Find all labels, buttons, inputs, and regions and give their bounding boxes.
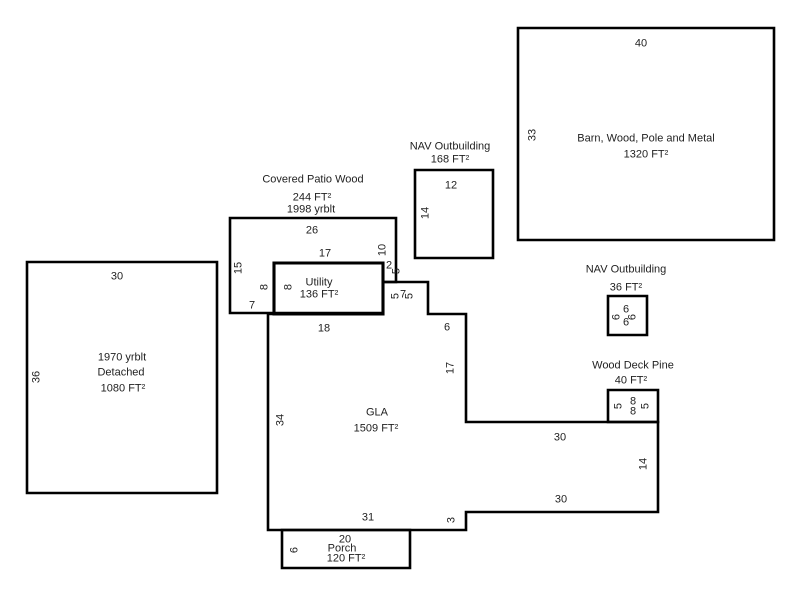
covered-patio-title: Covered Patio Wood bbox=[262, 175, 363, 186]
porch-dim-left: 6 bbox=[290, 547, 301, 553]
detached-area-label: 1080 FT² bbox=[101, 384, 146, 395]
gla-dim-step: 3 bbox=[447, 517, 458, 523]
utility-dim-left-inner: 8 bbox=[284, 284, 295, 290]
nav-outbuilding-large-area-label: 168 FT² bbox=[431, 155, 470, 166]
nav-outbuilding-small-dim-left: 6 bbox=[612, 314, 623, 320]
nav-outbuilding-small-area-label: 36 FT² bbox=[610, 283, 642, 294]
covered-patio-year-built: 1998 yrblt bbox=[287, 205, 335, 216]
gla-dim-mid-right: 30 bbox=[554, 433, 566, 444]
appraisal-sketch-canvas: 40 33 Barn, Wood, Pole and Metal 1320 FT… bbox=[0, 0, 800, 600]
barn-dim-left: 33 bbox=[528, 129, 539, 141]
covered-patio-area-label: 244 FT² bbox=[293, 193, 332, 204]
barn-title: Barn, Wood, Pole and Metal bbox=[577, 134, 714, 145]
utility-dim-top: 17 bbox=[319, 249, 331, 260]
utility-area-label: 136 FT² bbox=[300, 290, 339, 301]
utility-dim-left-outer: 8 bbox=[260, 284, 271, 290]
wood-deck-dim-bottom: 8 bbox=[630, 407, 636, 418]
nav-outbuilding-small-dim-bottom: 6 bbox=[623, 318, 629, 329]
covered-patio-dim-left: 15 bbox=[234, 262, 245, 274]
nav-outbuilding-large-dim-top: 12 bbox=[445, 181, 457, 192]
barn-area-label: 1320 FT² bbox=[624, 150, 669, 161]
nav-outbuilding-small-title: NAV Outbuilding bbox=[586, 265, 667, 276]
wood-deck-dim-right: 5 bbox=[641, 403, 652, 409]
nav-outbuilding-large-dim-left: 14 bbox=[421, 207, 432, 219]
gla-dim-left: 34 bbox=[276, 414, 287, 426]
gla-dim-upper-right: 17 bbox=[446, 362, 457, 374]
nav-outbuilding-small-dim-right: 6 bbox=[628, 314, 639, 320]
detached-dim-top: 30 bbox=[111, 272, 123, 283]
covered-patio-dim-top: 26 bbox=[306, 226, 318, 237]
gla-dim-bottom: 31 bbox=[362, 513, 374, 524]
gla-area-label: 1509 FT² bbox=[354, 424, 399, 435]
gla-title: GLA bbox=[366, 408, 388, 419]
wood-deck-dim-left: 5 bbox=[614, 403, 625, 409]
covered-patio-dim-right: 10 bbox=[378, 244, 389, 256]
porch-area-label: 120 FT² bbox=[327, 554, 366, 565]
wood-deck-area-label: 40 FT² bbox=[615, 376, 647, 387]
gla-dim-top: 18 bbox=[318, 324, 330, 335]
utility-title: Utility bbox=[306, 278, 333, 289]
covered-patio-dim-bottom: 7 bbox=[249, 301, 255, 312]
gla-dim-lower-right: 30 bbox=[555, 495, 567, 506]
gla-outline bbox=[268, 282, 658, 530]
gla-bump-dim-right: 5 bbox=[405, 293, 416, 299]
detached-title: Detached bbox=[97, 368, 144, 379]
wood-deck-title: Wood Deck Pine bbox=[592, 361, 674, 372]
covered-patio-dim-notch-v: 5 bbox=[392, 268, 403, 274]
detached-year-built: 1970 yrblt bbox=[98, 353, 146, 364]
gla-dim-right: 14 bbox=[639, 458, 650, 470]
gla-dim-top-right: 6 bbox=[444, 323, 450, 334]
detached-dim-left: 36 bbox=[32, 371, 43, 383]
barn-dim-top: 40 bbox=[635, 39, 647, 50]
nav-outbuilding-large-title: NAV Outbuilding bbox=[410, 142, 491, 153]
